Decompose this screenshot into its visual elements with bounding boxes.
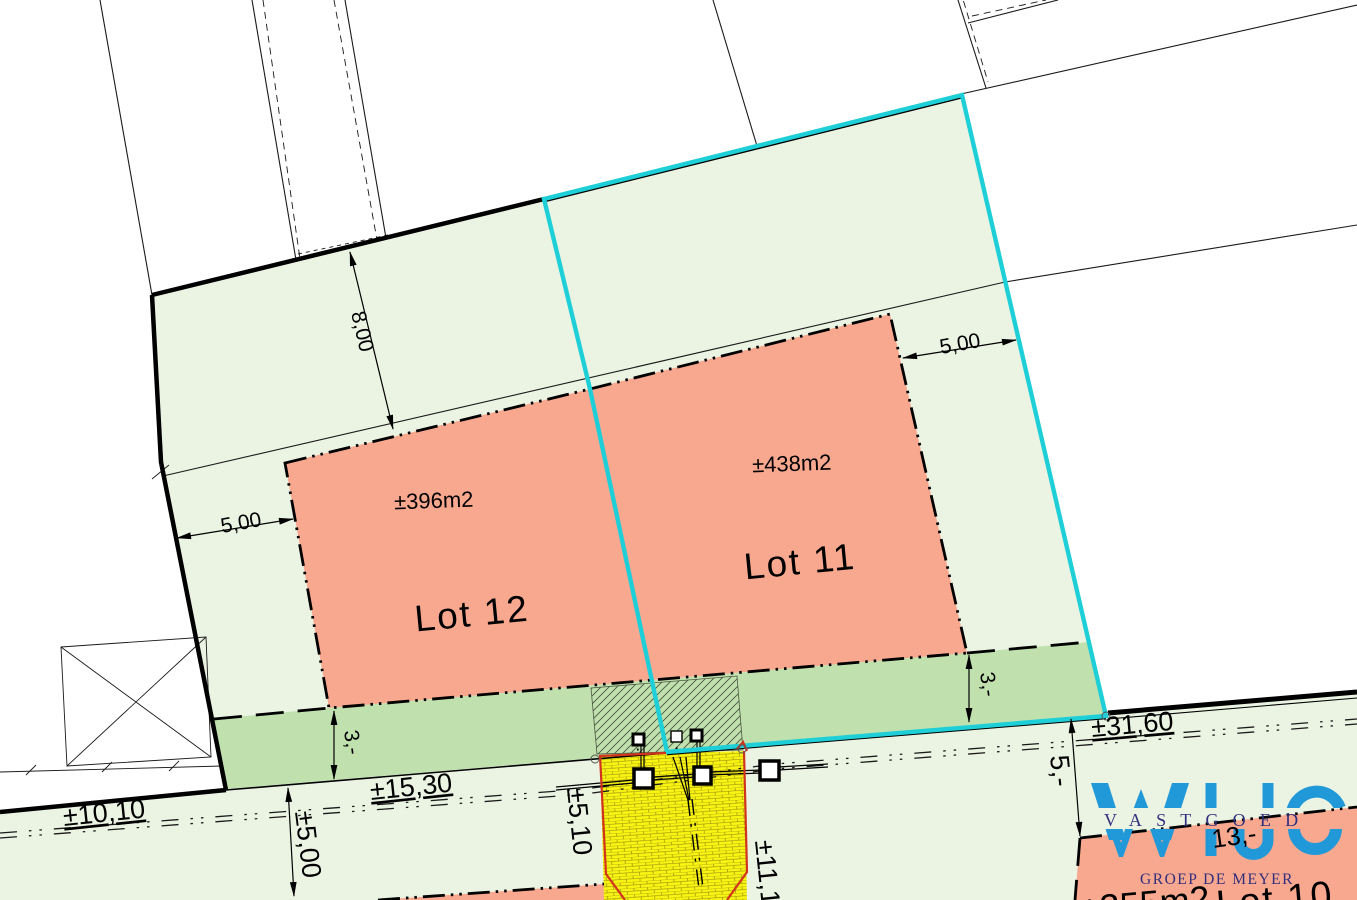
svg-text:VASTGOED: VASTGOED xyxy=(1104,810,1312,830)
svg-text:±11,1: ±11,1 xyxy=(749,838,786,900)
svg-text:±396m2: ±396m2 xyxy=(394,487,474,515)
svg-text:±438m2: ±438m2 xyxy=(752,450,832,478)
svg-text:GROEP DE MEYER: GROEP DE MEYER xyxy=(1140,871,1294,888)
svg-text:3,-: 3,- xyxy=(339,728,365,755)
svg-text:13,-: 13,- xyxy=(1210,818,1259,854)
svg-text:5,-: 5,- xyxy=(1044,753,1077,787)
svg-text:3,-: 3,- xyxy=(975,670,1001,697)
